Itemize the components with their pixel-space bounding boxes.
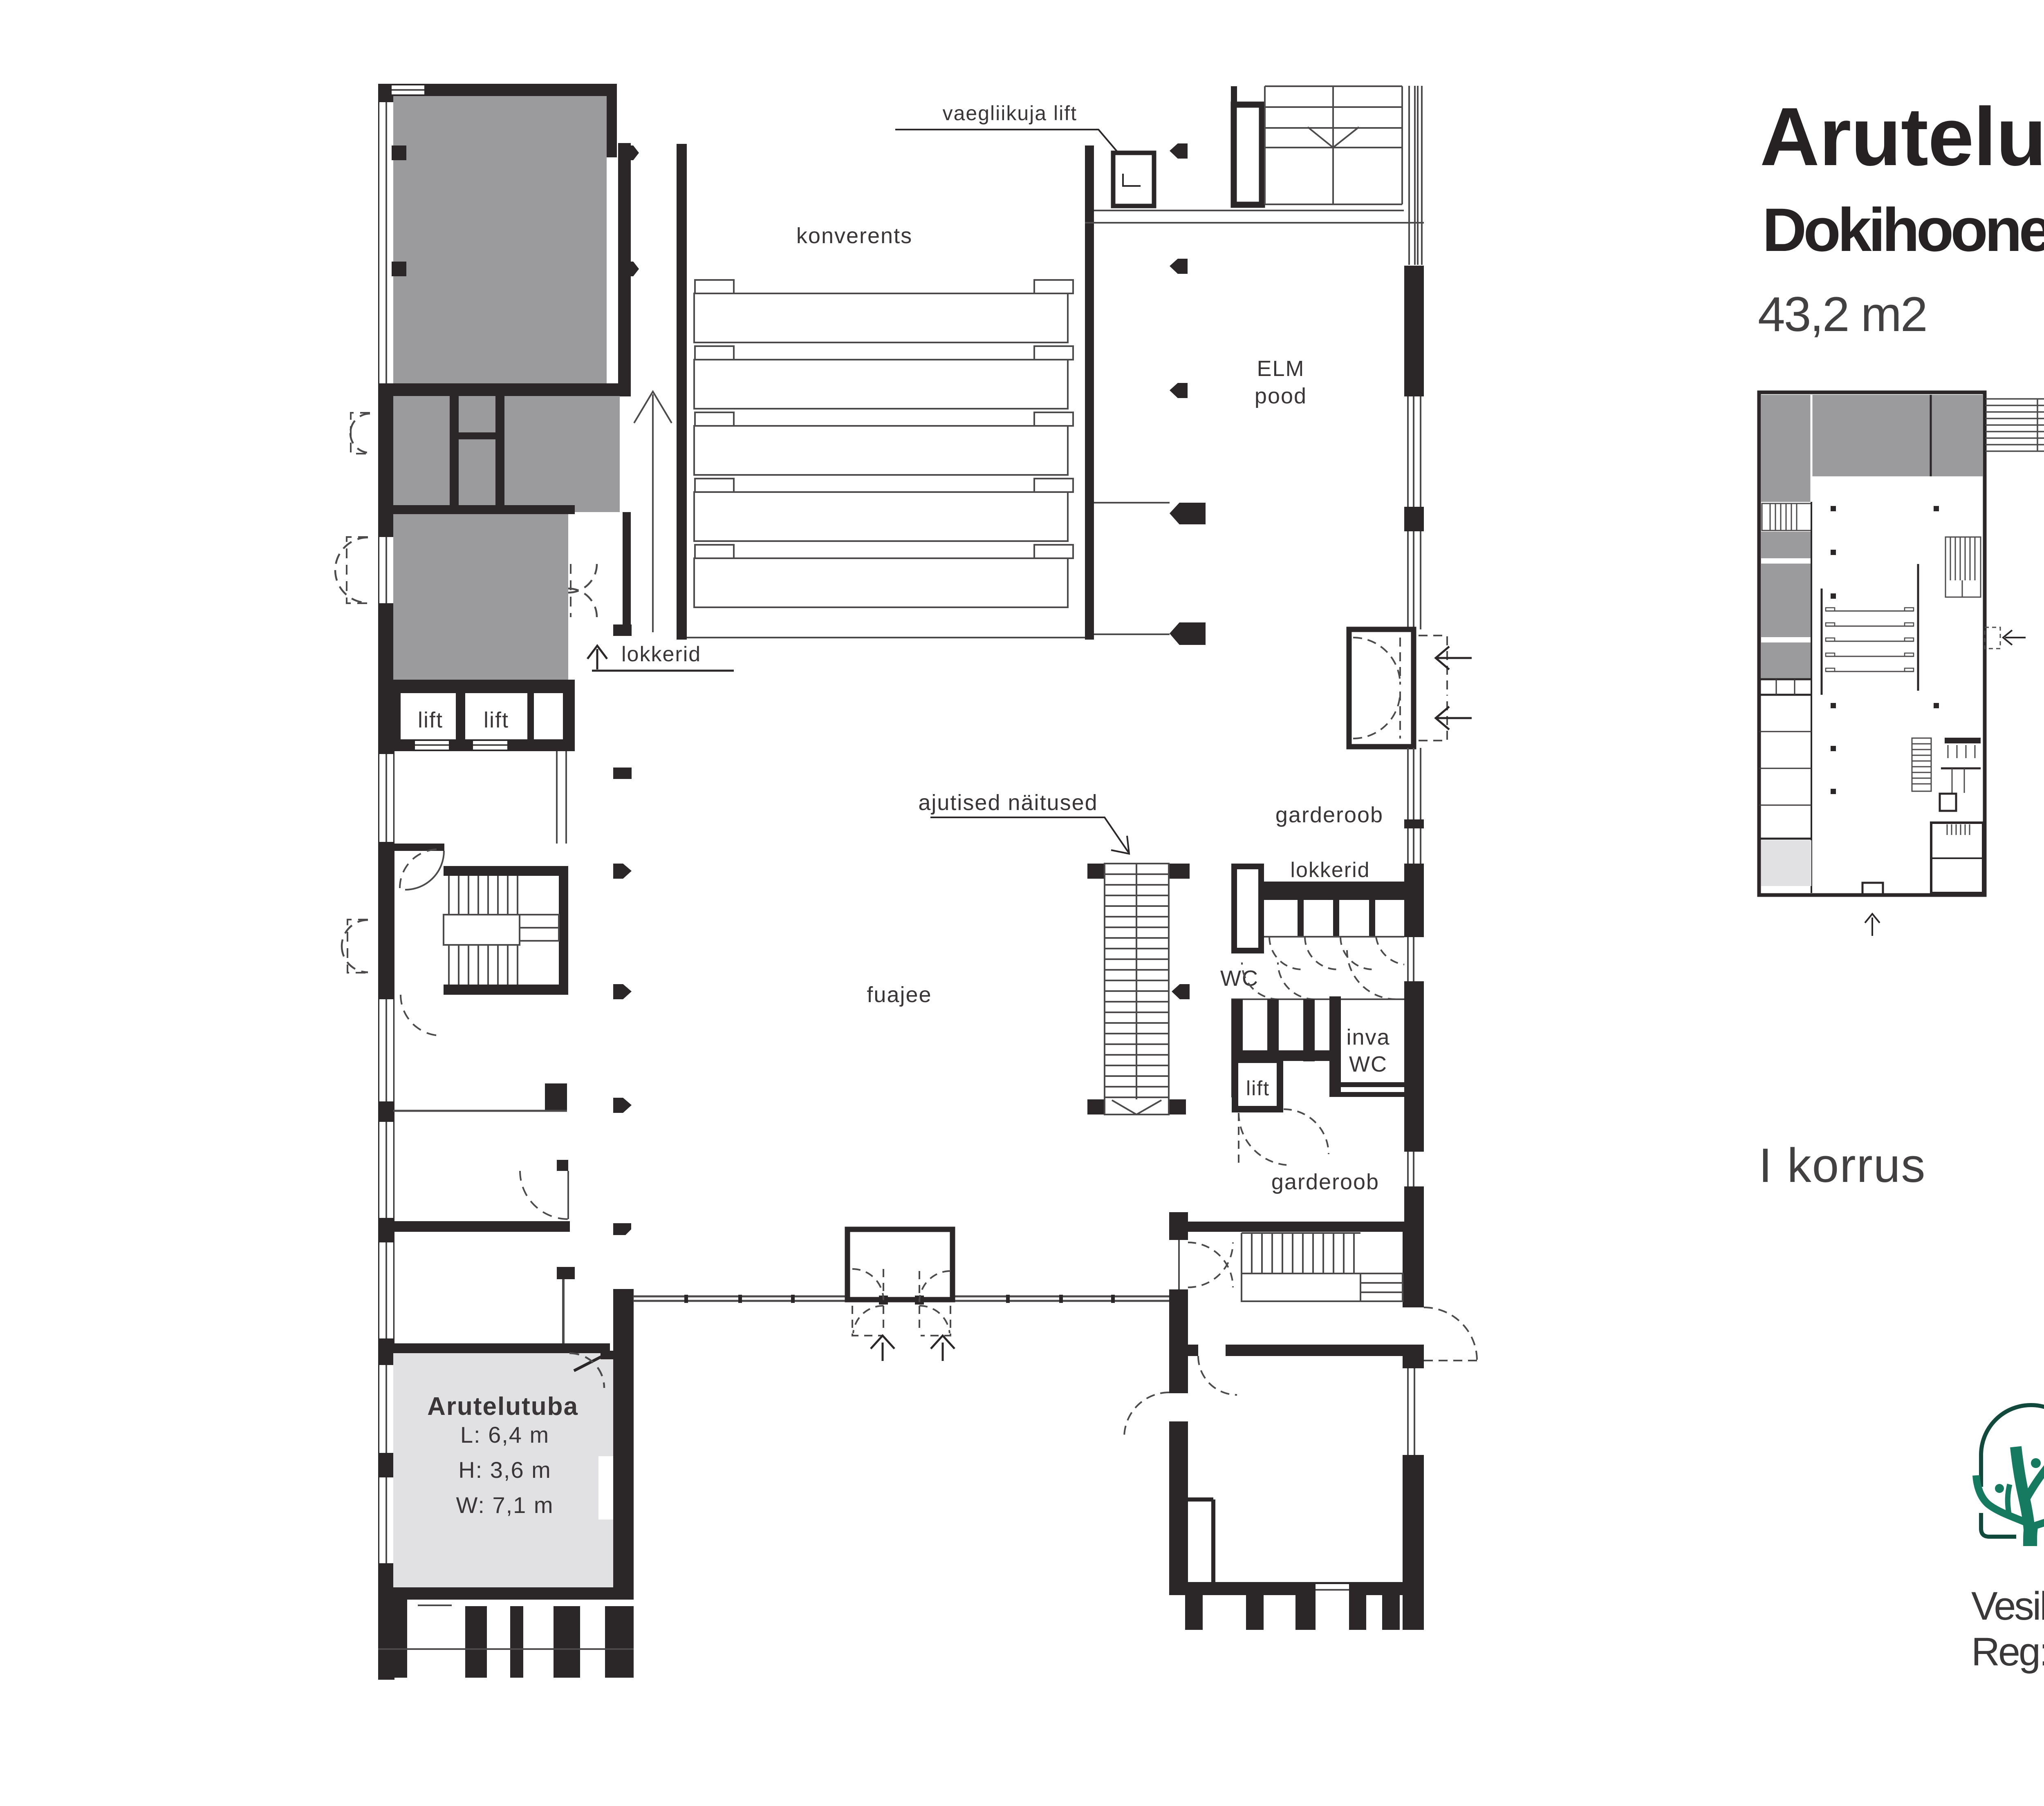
svg-text:lokkerid: lokkerid: [621, 642, 701, 666]
svg-text:WC: WC: [1349, 1052, 1387, 1076]
svg-text:W: 7,1 m: W: 7,1 m: [456, 1492, 554, 1518]
svg-text:ELM: ELM: [1257, 356, 1304, 381]
svg-text:H: 3,6 m: H: 3,6 m: [458, 1457, 551, 1483]
svg-text:WC: WC: [1220, 966, 1259, 991]
svg-text:lift: lift: [1246, 1077, 1270, 1100]
svg-text:lift: lift: [484, 708, 509, 732]
svg-text:I korrus: I korrus: [1759, 1139, 1926, 1193]
svg-text:lift: lift: [418, 708, 443, 732]
svg-text:Arutelutuba: Arutelutuba: [427, 1392, 578, 1421]
svg-text:konverents: konverents: [796, 224, 912, 248]
svg-text:Dokihoone: Dokihoone: [1762, 195, 2044, 264]
svg-text:lokkerid: lokkerid: [1290, 858, 1370, 882]
svg-text:garderoob: garderoob: [1271, 1170, 1379, 1194]
svg-text:garderoob: garderoob: [1275, 803, 1383, 827]
svg-text:ajutised näitused: ajutised näitused: [918, 790, 1098, 815]
svg-text:pood: pood: [1255, 384, 1307, 408]
svg-text:vaegliikuja lift: vaegliikuja lift: [943, 102, 1077, 125]
svg-text:Vesilennuki tn 12, Tallinn: Vesilennuki tn 12, Tallinn: [1971, 1584, 2044, 1628]
svg-text:L: 6,4 m: L: 6,4 m: [460, 1422, 549, 1448]
svg-text:43,2 m2: 43,2 m2: [1758, 287, 1927, 342]
svg-text:Arutelutuba: Arutelutuba: [1760, 90, 2044, 183]
svg-text:Reg: 70003129: Reg: 70003129: [1971, 1629, 2044, 1674]
svg-text:inva: inva: [1346, 1025, 1390, 1050]
svg-text:fuajee: fuajee: [867, 982, 932, 1007]
